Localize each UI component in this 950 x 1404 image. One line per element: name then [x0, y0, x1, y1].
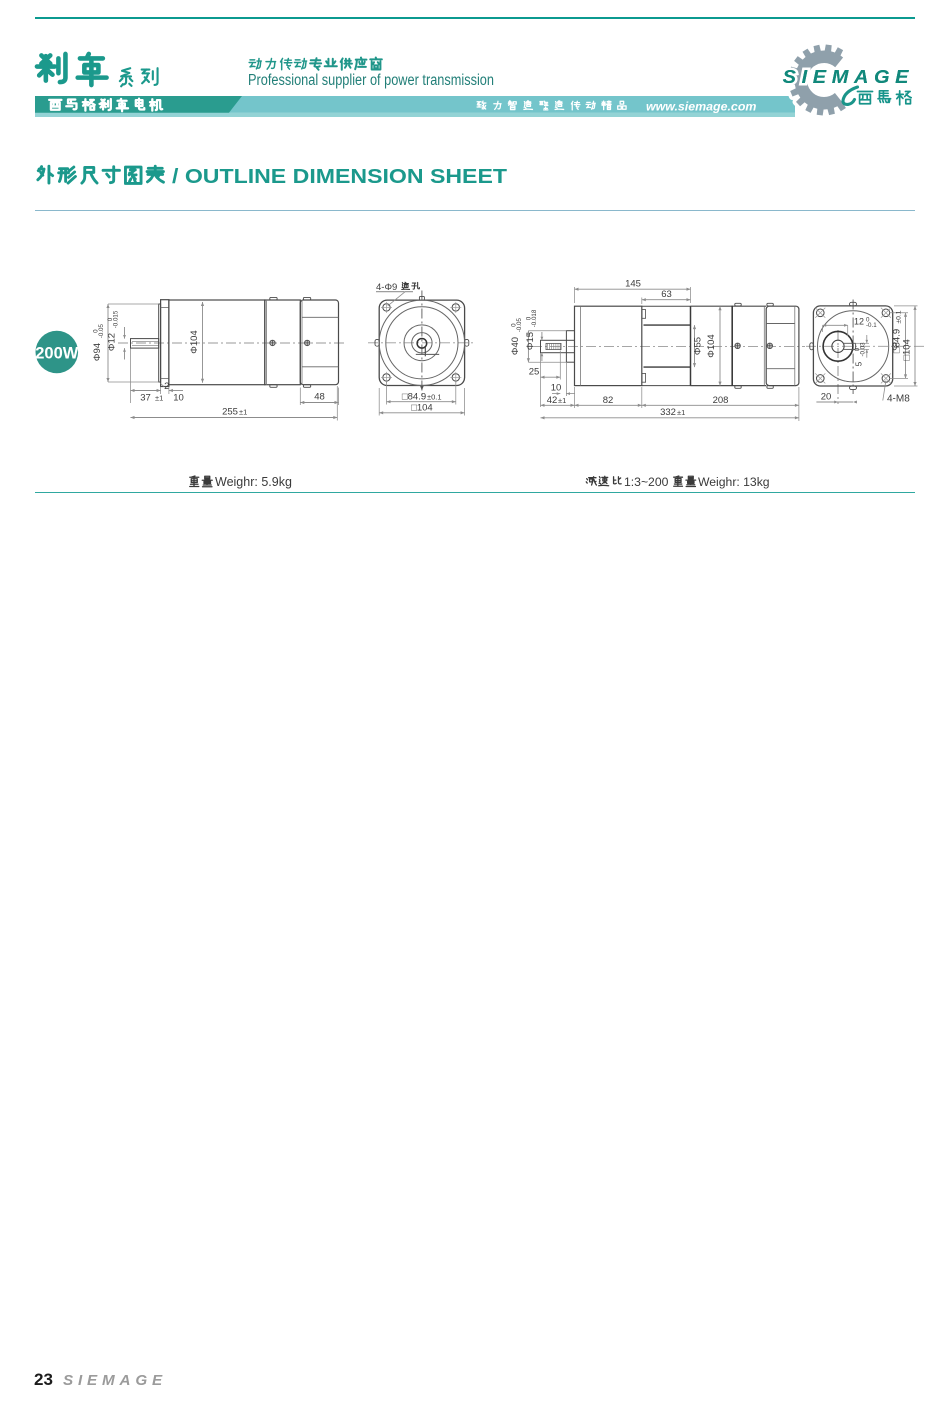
- svg-text:Φ40: Φ40: [510, 337, 521, 355]
- svg-text:Φ12: Φ12: [107, 333, 118, 351]
- svg-text:255: 255: [222, 407, 238, 418]
- svg-text:±0.1: ±0.1: [427, 392, 442, 401]
- svg-text:63: 63: [661, 289, 672, 300]
- svg-text:1:3~200: 1:3~200: [624, 475, 669, 489]
- svg-text:Weighr: 5.9kg: Weighr: 5.9kg: [215, 475, 292, 489]
- svg-text:-0.018: -0.018: [531, 309, 538, 327]
- svg-text:Φ104: Φ104: [706, 334, 717, 357]
- svg-text:±1: ±1: [239, 408, 247, 417]
- svg-text:Φ104: Φ104: [189, 330, 200, 353]
- svg-text:145: 145: [625, 279, 641, 290]
- svg-text:±0.1: ±0.1: [896, 310, 903, 323]
- svg-text:10: 10: [173, 393, 184, 404]
- svg-text:□84.9: □84.9: [402, 391, 426, 402]
- svg-text:±1: ±1: [677, 408, 685, 417]
- svg-text:-0.015: -0.015: [113, 310, 120, 328]
- svg-text:37: 37: [140, 393, 151, 404]
- svg-text:-0.05: -0.05: [516, 317, 523, 332]
- svg-text:www.siemage.com: www.siemage.com: [646, 100, 756, 114]
- svg-text:Φ94: Φ94: [92, 343, 103, 361]
- svg-text:48: 48: [314, 392, 325, 403]
- svg-text:/ OUTLINE DIMENSION SHEET: / OUTLINE DIMENSION SHEET: [172, 165, 508, 188]
- svg-text:208: 208: [713, 395, 729, 406]
- svg-text:200W: 200W: [35, 345, 79, 363]
- svg-text:42: 42: [547, 395, 558, 406]
- svg-text:Weighr: 13kg: Weighr: 13kg: [698, 475, 770, 489]
- svg-text:□104: □104: [411, 402, 433, 413]
- svg-text:25: 25: [529, 367, 540, 378]
- svg-text:20: 20: [821, 392, 832, 403]
- svg-text:82: 82: [603, 395, 614, 406]
- svg-text:4-Φ9: 4-Φ9: [376, 282, 397, 293]
- svg-text:-0.1: -0.1: [866, 322, 877, 329]
- svg-text:Φ15: Φ15: [525, 332, 536, 350]
- svg-text:332: 332: [660, 407, 676, 418]
- svg-text:□104: □104: [902, 339, 913, 361]
- svg-text:5: 5: [855, 361, 864, 366]
- svg-text:4-M8: 4-M8: [887, 394, 910, 405]
- svg-text:±1: ±1: [558, 396, 566, 405]
- svg-text:10: 10: [551, 383, 562, 394]
- svg-text:SIEMAGE: SIEMAGE: [783, 68, 914, 88]
- svg-text:12: 12: [854, 316, 864, 326]
- svg-text:-0.03: -0.03: [860, 342, 867, 357]
- svg-text:±1: ±1: [155, 394, 163, 403]
- svg-text:-0.05: -0.05: [98, 323, 105, 338]
- svg-text:Φ55: Φ55: [693, 337, 704, 355]
